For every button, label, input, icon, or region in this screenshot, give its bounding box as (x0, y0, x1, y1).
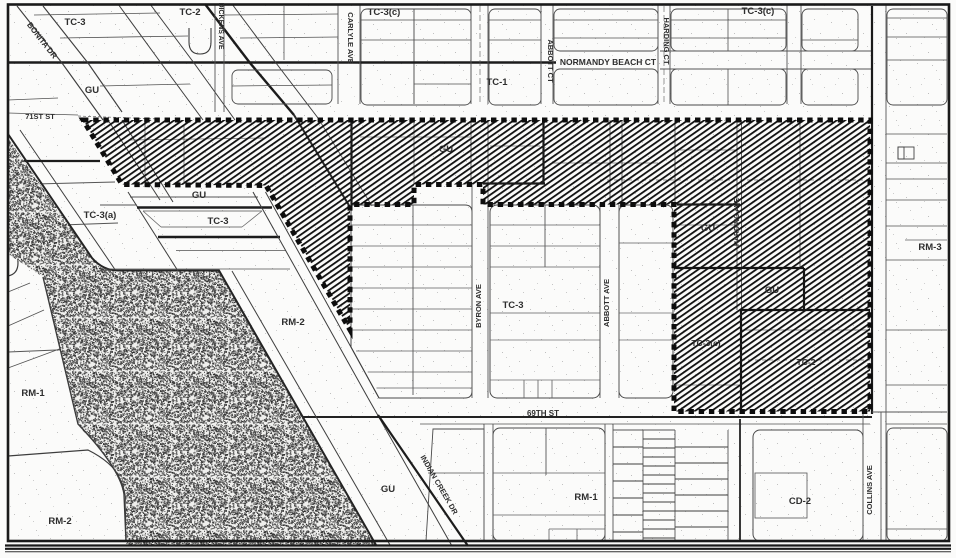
svg-text:GU: GU (85, 85, 99, 96)
svg-text:TC-3(c): TC-3(c) (742, 6, 775, 17)
svg-text:TC-2: TC-2 (179, 7, 200, 18)
svg-text:BYRON AVE: BYRON AVE (474, 284, 483, 328)
svg-text:RM-1: RM-1 (21, 388, 45, 399)
svg-text:ABBOTT CT: ABBOTT CT (546, 39, 555, 83)
svg-text:RM-1: RM-1 (574, 492, 598, 503)
svg-text:NORMANDY BEACH CT: NORMANDY BEACH CT (560, 57, 657, 67)
svg-text:ABBOTT AVE: ABBOTT AVE (602, 279, 611, 327)
svg-text:GU: GU (701, 223, 715, 234)
svg-text:TC-3(c): TC-3(c) (368, 7, 401, 18)
svg-text:TC-2: TC-2 (797, 357, 816, 367)
svg-text:TC-1: TC-1 (486, 77, 508, 88)
svg-text:GU: GU (381, 484, 395, 495)
svg-text:HARDING AVE: HARDING AVE (734, 198, 741, 247)
svg-text:TC-3: TC-3 (502, 300, 523, 311)
svg-text:CD-2: CD-2 (789, 496, 811, 507)
svg-text:GU: GU (192, 190, 206, 201)
svg-text:RM-2: RM-2 (48, 516, 71, 527)
svg-text:HARDING CT: HARDING CT (662, 17, 671, 64)
svg-text:COLLINS AVE: COLLINS AVE (865, 465, 874, 515)
svg-text:71ST ST: 71ST ST (25, 112, 55, 121)
svg-text:RM-3: RM-3 (918, 242, 941, 253)
svg-text:TC-3: TC-3 (64, 17, 85, 28)
svg-text:TC-3(a): TC-3(a) (84, 210, 117, 221)
svg-text:TC-3(c): TC-3(c) (691, 338, 720, 348)
svg-text:GU: GU (765, 285, 779, 296)
svg-text:RM-2: RM-2 (281, 317, 304, 328)
svg-text:69TH ST: 69TH ST (527, 409, 559, 418)
svg-text:DICKENS AVE: DICKENS AVE (217, 2, 224, 49)
svg-text:CARLYLE AVE: CARLYLE AVE (346, 12, 355, 63)
svg-text:TC-3: TC-3 (207, 216, 228, 227)
svg-text:GU: GU (439, 144, 453, 155)
